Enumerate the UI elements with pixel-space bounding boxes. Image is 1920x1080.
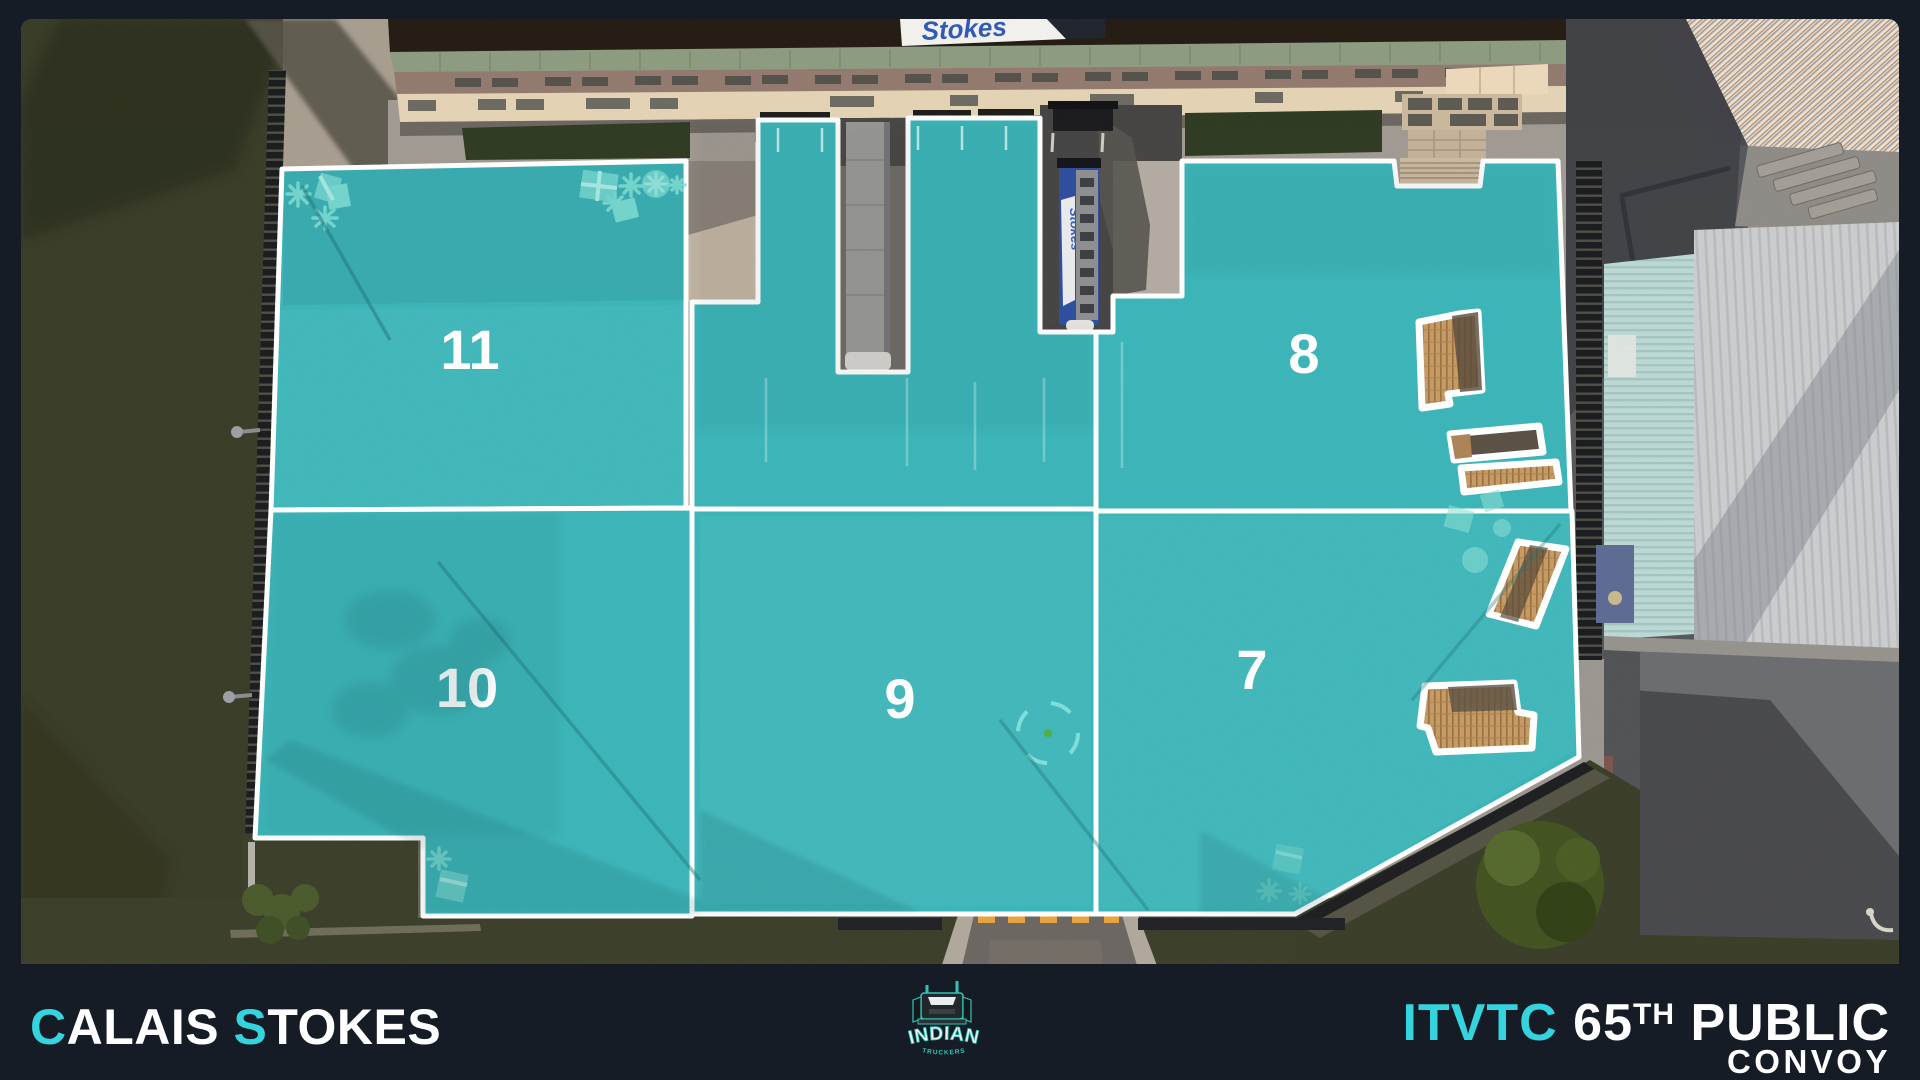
svg-text:CONVOY: CONVOY [1727, 1043, 1891, 1080]
svg-text:CALAIS STOKES: CALAIS STOKES [30, 999, 441, 1055]
